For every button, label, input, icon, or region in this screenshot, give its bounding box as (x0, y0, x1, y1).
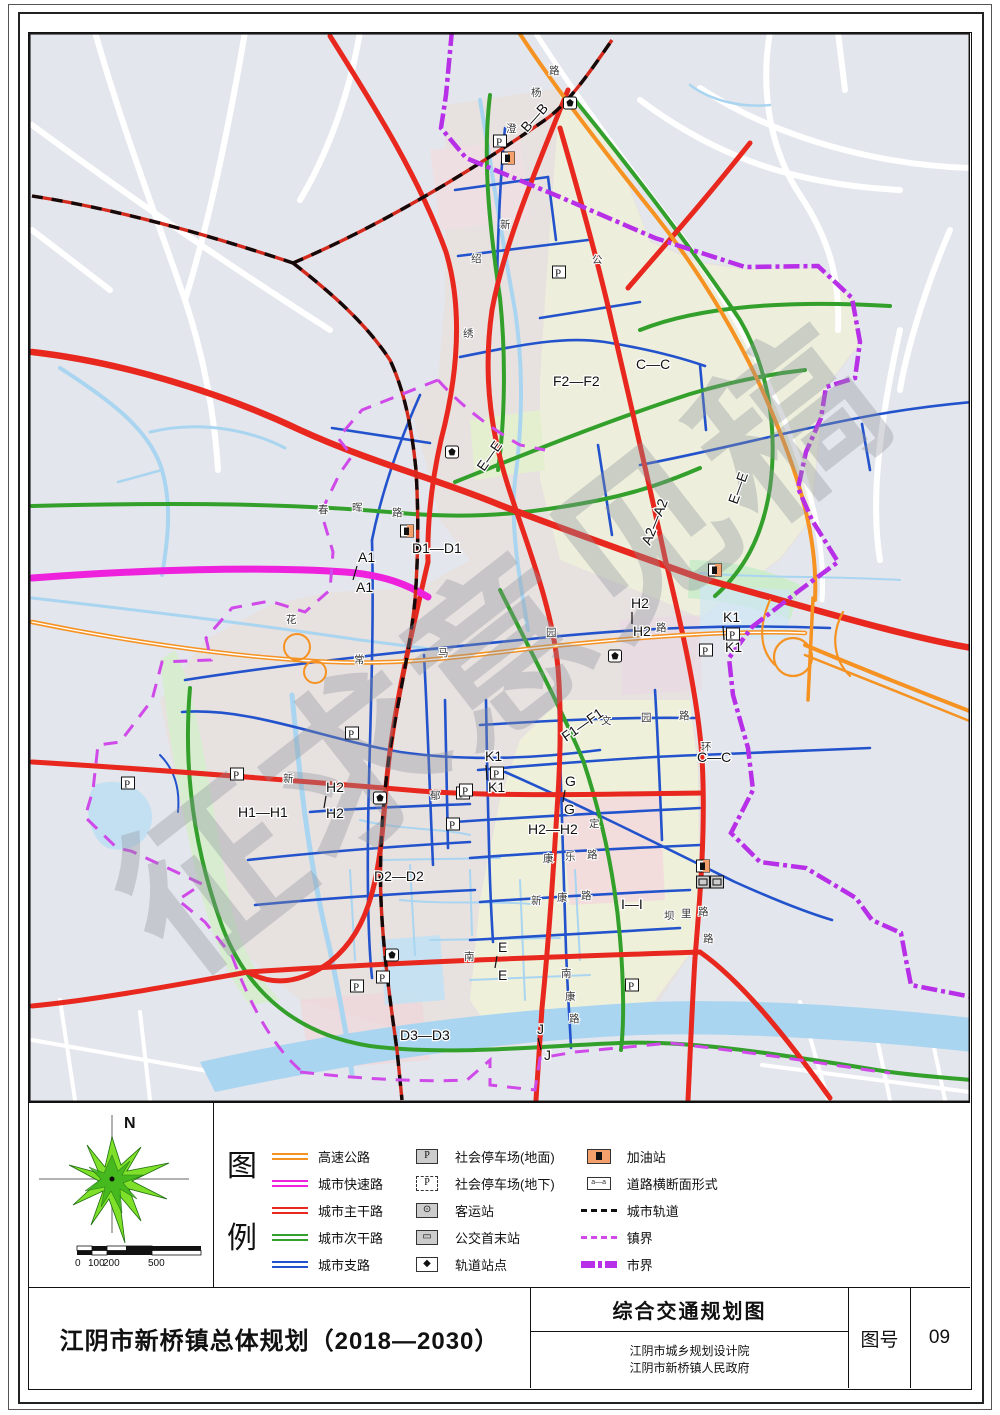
road-name-char: 春 (318, 504, 329, 516)
cross-section-label: F2—F2 (553, 373, 600, 389)
road-name-char: 路 (587, 848, 598, 861)
road-name-char: 路 (549, 64, 560, 77)
road-name-char: 路 (679, 709, 690, 722)
legend-label: 城市主干路 (318, 1201, 383, 1220)
cross-section-label: G (564, 801, 575, 817)
legend-item: 市界 (581, 1255, 718, 1273)
rail-station-icon (564, 97, 577, 109)
road-name-char: 康 (565, 990, 576, 1003)
road-name-char: 澄 (506, 122, 517, 135)
svg-text:P: P (348, 729, 354, 741)
legend-label: 市界 (627, 1255, 653, 1274)
rail-line-icon (581, 1209, 617, 1212)
cross-section-label: H2 (326, 805, 344, 821)
parking-icon: P (700, 644, 713, 658)
cross-section-label: K1 (485, 748, 502, 764)
legend-item: 加油站 (581, 1147, 718, 1165)
cross-section-label: D2—D2 (374, 868, 424, 884)
svg-text:P: P (449, 820, 455, 832)
road-name-char: 乐 (565, 851, 576, 863)
rail-station-icon (374, 792, 387, 804)
figure-number-value: 09 (911, 1288, 968, 1388)
cross-section-label: C—C (697, 749, 731, 765)
road-name-char: 定 (589, 817, 600, 830)
legend-item: ◆轨道站点 (409, 1255, 555, 1273)
svg-text:P: P (496, 137, 502, 149)
cross-section-label: G (565, 773, 576, 789)
legend-item: 城市主干路 (272, 1201, 383, 1219)
parking-icon: P (346, 727, 359, 741)
title-bar: 江阴市新桥镇总体规划（2018—2030） 综合交通规划图 江阴市城乡规划设计院… (29, 1287, 970, 1388)
cross-section-label: H2 (326, 779, 344, 795)
parking-icon: P (231, 768, 244, 782)
road-name-char: 公 (592, 254, 603, 266)
legend-heading: 图 例 (224, 1141, 260, 1285)
scale-bar: 01002005001000m (75, 1246, 212, 1269)
road-name-char: 路 (698, 905, 709, 918)
legend-label: 客运站 (455, 1201, 494, 1220)
map-viewport: 征求意见稿 PPPPPPPPPPPPPP 路杨澄新绍绣公春晖路花常马园路环路郁新… (29, 33, 970, 1102)
road-name-char: 花 (286, 613, 297, 626)
legend-label: 城市次干路 (318, 1228, 383, 1247)
rail-station-icon (446, 446, 459, 458)
legend-item: 城市次干路 (272, 1228, 383, 1246)
drawing-title-cell: 综合交通规划图 江阴市城乡规划设计院 江阴市新桥镇人民政府 (531, 1288, 849, 1388)
drawing-title: 综合交通规划图 (531, 1288, 848, 1332)
road-name-char: 杨 (531, 86, 542, 99)
legend-swatch-line (272, 1180, 308, 1187)
road-name-char: 路 (703, 932, 714, 945)
legend-column-lines: 高速公路城市快速路城市主干路城市次干路城市支路 (272, 1147, 383, 1273)
road-name-char: 南 (464, 950, 475, 963)
rail-station-icon: ◆ (409, 1257, 445, 1272)
cross-section-label: I—I (621, 896, 643, 912)
legend-item: 镇界 (581, 1228, 718, 1246)
cross-section-label: K1 (725, 639, 742, 655)
cross-section-label: J (537, 1021, 544, 1037)
scale-label: 0 (75, 1258, 81, 1269)
legend-label: 城市快速路 (318, 1174, 383, 1193)
legend-label: 加油站 (627, 1147, 666, 1166)
legend-item: ⊙客运站 (409, 1201, 555, 1219)
cross-section-label: A1 (358, 549, 375, 565)
svg-text:P: P (462, 786, 468, 798)
road-name-char: 晖 (352, 502, 363, 514)
svg-text:P: P (233, 770, 239, 782)
legend-item: P社会停车场(地面) (409, 1147, 555, 1165)
legend-label: 社会停车场(地下) (455, 1174, 555, 1193)
scale-label: 200 (103, 1258, 120, 1269)
parking-icon: P (447, 818, 460, 832)
compass-north: N (124, 1115, 136, 1132)
road-name-char: 新 (283, 772, 294, 785)
legend-column-facilities: P社会停车场(地面)P社会停车场(地下)⊙客运站▭公交首末站◆轨道站点 (409, 1147, 555, 1273)
legend-heading-char: 例 (224, 1213, 260, 1257)
planning-map: 征求意见稿 PPPPPPPPPPPPPP 路杨澄新绍绣公春晖路花常马园路环路郁新… (29, 33, 970, 1102)
road-name-char: 康 (543, 852, 554, 865)
legend-item: 城市轨道 (581, 1201, 718, 1219)
bus-terminal-icon: ▭ (409, 1230, 445, 1245)
legend-label: 轨道站点 (455, 1255, 507, 1274)
road-name-char: 坝 (664, 909, 675, 922)
svg-text:P: P (124, 779, 130, 791)
gas-station-icon (709, 564, 722, 576)
parking-underground-icon: P (409, 1176, 445, 1191)
legend-swatch-line (272, 1207, 308, 1214)
town-boundary-icon (581, 1236, 617, 1239)
legend-label: 镇界 (627, 1228, 653, 1247)
bus-terminal-icon (697, 876, 710, 888)
road-name-char: 园 (641, 712, 652, 724)
cross-section-label: A1 (356, 579, 373, 595)
road-name-char: 马 (438, 647, 449, 659)
legend-area: 图 例 高速公路城市快速路城市主干路城市次干路城市支路 P社会停车场(地面)P社… (214, 1103, 970, 1287)
cross-section-label: D3—D3 (400, 1027, 450, 1043)
svg-text:P: P (555, 268, 561, 280)
road-name-char: 园 (546, 627, 557, 639)
cross-section-label: H2 (631, 595, 649, 611)
road-name-char: 绍 (471, 252, 482, 265)
legend-swatch-line (272, 1153, 308, 1160)
legend-swatch-line (272, 1261, 308, 1268)
cross-section-label: E (498, 967, 507, 983)
legend-column-misc: 加油站a—a道路横断面形式城市轨道镇界市界 (581, 1147, 718, 1273)
parking-icon: P (122, 777, 135, 791)
road-name-char: 里 (681, 908, 692, 920)
road-name-char: 康 (557, 891, 568, 904)
scale-label: 500 (148, 1258, 165, 1269)
legend-item: 城市支路 (272, 1255, 383, 1273)
road-name-char: 新 (531, 894, 542, 907)
road-name-char: 常 (354, 653, 365, 666)
rail-station-icon (386, 949, 399, 961)
parking-icon: P (626, 979, 639, 993)
legend-item: 高速公路 (272, 1147, 383, 1165)
legend-swatch-line (272, 1234, 308, 1241)
road-name-char: 路 (656, 621, 667, 634)
legend-item: P社会停车场(地下) (409, 1174, 555, 1192)
legend-label: 社会停车场(地面) (455, 1147, 555, 1166)
svg-text:P: P (379, 973, 385, 985)
cross-section-label: J (544, 1047, 551, 1063)
project-title: 江阴市新桥镇总体规划（2018—2030） (29, 1288, 531, 1388)
parking-icon: P (553, 266, 566, 280)
gas-station-icon (502, 152, 515, 164)
legend-heading-char: 图 (224, 1141, 260, 1185)
parking-ground-icon: P (409, 1149, 445, 1164)
drawing-frame: 征求意见稿 PPPPPPPPPPPPPP 路杨澄新绍绣公春晖路花常马园路环路郁新… (28, 32, 972, 1390)
parking-icon: P (460, 784, 473, 798)
svg-text:P: P (628, 981, 634, 993)
cross-section-label: C—C (636, 356, 670, 372)
legend-item: a—a道路横断面形式 (581, 1174, 718, 1192)
road-name-char: 路 (392, 506, 403, 519)
city-boundary-icon (581, 1261, 617, 1268)
org-line-2: 江阴市新桥镇人民政府 (629, 1360, 749, 1377)
legend-item: 城市快速路 (272, 1174, 383, 1192)
passenger-station-icon: ⊙ (409, 1203, 445, 1218)
svg-text:P: P (702, 646, 708, 658)
road-name-char: 郁 (430, 789, 441, 802)
road-name-char: 路 (581, 889, 592, 902)
road-name-char: 路 (569, 1012, 580, 1025)
rail-station-icon (609, 650, 622, 662)
bus-terminal-icon (711, 876, 724, 888)
cross-section-label: H2—H2 (528, 821, 578, 837)
cross-section-label: K1 (723, 609, 740, 625)
org-line-1: 江阴市城乡规划设计院 (629, 1343, 749, 1360)
compass-box: N 01002005 (29, 1103, 214, 1287)
compass-rose: N (39, 1115, 189, 1243)
gas-station-icon (401, 525, 414, 537)
parking-icon: P (377, 971, 390, 985)
cross-section-label: E (498, 939, 507, 955)
legend-label: 高速公路 (318, 1147, 370, 1166)
cross-section-icon: a—a (581, 1177, 617, 1190)
legend-label: 公交首末站 (455, 1228, 520, 1247)
legend-band: N 01002005 (29, 1102, 970, 1287)
road-name-char: 新 (500, 218, 511, 231)
gas-station-icon (697, 860, 710, 872)
cross-section-label: H1—H1 (238, 804, 288, 820)
legend-label: 城市支路 (318, 1255, 370, 1274)
cross-section-label: D1—D1 (412, 540, 462, 556)
svg-text:P: P (353, 982, 359, 994)
gas-station-icon (581, 1149, 617, 1164)
road-name-char: 南 (561, 967, 572, 980)
road-name-char: 绣 (463, 327, 474, 340)
cross-section-label: H2 (633, 623, 651, 639)
plan-sheet: 征求意见稿 PPPPPPPPPPPPPP 路杨澄新绍绣公春晖路花常马园路环路郁新… (0, 0, 1000, 1415)
legend-item: ▭公交首末站 (409, 1228, 555, 1246)
parking-icon: P (351, 980, 364, 994)
cross-section-label: K1 (488, 779, 505, 795)
parking-icon: P (494, 135, 507, 149)
legend-label: 城市轨道 (627, 1201, 679, 1220)
legend-label: 道路横断面形式 (627, 1174, 718, 1193)
figure-number-label: 图号 (849, 1288, 911, 1388)
